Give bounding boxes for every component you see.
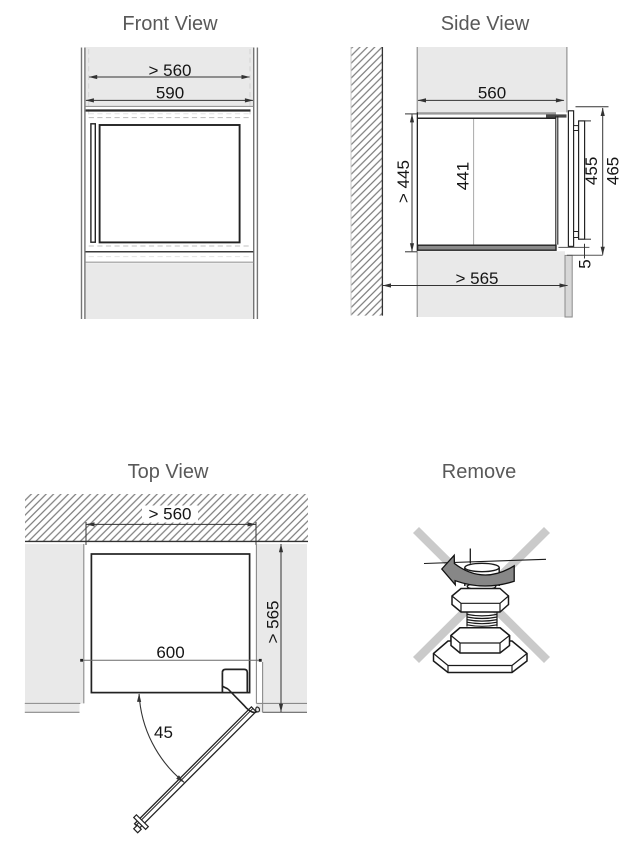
svg-text:> 565: > 565 [264, 600, 283, 643]
svg-text:Remove: Remove [442, 461, 516, 483]
svg-text:560: 560 [478, 84, 506, 103]
svg-text:> 560: > 560 [148, 61, 191, 80]
svg-text:> 560: > 560 [148, 505, 191, 524]
svg-text:590: 590 [156, 84, 184, 103]
svg-text:Front View: Front View [122, 13, 218, 35]
svg-text:45: 45 [154, 723, 173, 742]
svg-text:5: 5 [576, 259, 595, 268]
svg-text:> 445: > 445 [394, 160, 413, 203]
svg-text:455: 455 [582, 157, 601, 185]
svg-text:Side View: Side View [441, 13, 530, 35]
svg-text:600: 600 [156, 643, 184, 662]
svg-text:465: 465 [603, 157, 622, 185]
svg-text:441: 441 [454, 162, 473, 190]
svg-text:> 565: > 565 [455, 269, 498, 288]
svg-text:Top View: Top View [128, 461, 209, 483]
